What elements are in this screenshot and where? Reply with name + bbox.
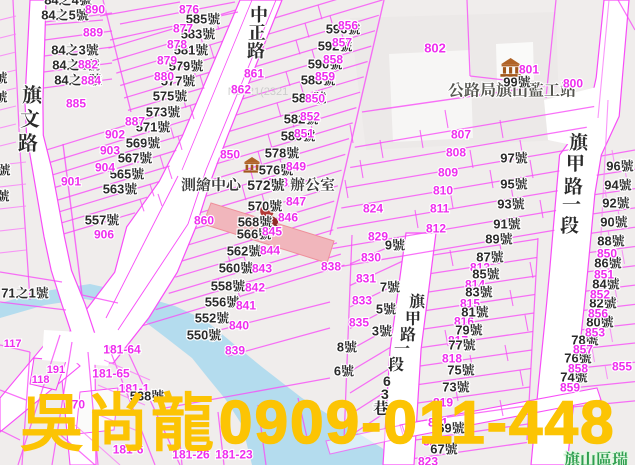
svg-text:878: 878 (167, 37, 187, 51)
svg-text:71: 71 (1, 286, 15, 301)
svg-text:99: 99 (503, 75, 517, 90)
svg-text:846: 846 (278, 210, 298, 224)
svg-text:887: 887 (125, 114, 145, 128)
svg-text:567: 567 (118, 151, 140, 166)
svg-text:889: 889 (83, 25, 103, 39)
svg-text:809: 809 (438, 165, 458, 179)
svg-text:552: 552 (195, 311, 217, 326)
svg-text:877: 877 (173, 21, 193, 35)
svg-text:563: 563 (103, 182, 125, 197)
svg-text:3: 3 (372, 324, 379, 339)
svg-text:876: 876 (179, 2, 199, 16)
svg-text:849: 849 (286, 159, 306, 173)
svg-text:558: 558 (211, 279, 233, 294)
svg-text:853: 853 (585, 325, 605, 339)
svg-text:860: 860 (194, 213, 214, 227)
svg-text:885: 885 (66, 96, 86, 110)
svg-text:118: 118 (32, 374, 50, 386)
svg-text:802: 802 (424, 41, 446, 56)
svg-text:903: 903 (100, 143, 120, 157)
svg-text:841: 841 (236, 298, 256, 312)
svg-text:6: 6 (334, 364, 341, 379)
svg-text:96: 96 (606, 159, 620, 174)
svg-text:560: 560 (219, 261, 241, 276)
svg-text:845: 845 (262, 224, 282, 238)
svg-text:566: 566 (237, 227, 259, 242)
svg-text:84: 84 (54, 73, 69, 88)
svg-text:835: 835 (349, 315, 369, 329)
svg-text:843: 843 (252, 261, 272, 275)
svg-text:838: 838 (321, 259, 341, 273)
svg-text:91: 91 (493, 217, 507, 232)
svg-text:94: 94 (604, 178, 619, 193)
svg-text:850: 850 (305, 91, 325, 105)
svg-text:906: 906 (94, 227, 114, 241)
svg-text:84: 84 (44, 0, 59, 8)
svg-text:858: 858 (568, 361, 588, 375)
svg-text:84: 84 (51, 43, 66, 58)
svg-text:855: 855 (612, 359, 632, 373)
svg-text:83: 83 (465, 285, 479, 300)
svg-text:850: 850 (220, 147, 240, 161)
svg-text:87: 87 (476, 250, 490, 265)
svg-text:562: 562 (227, 244, 249, 259)
svg-text:75: 75 (447, 363, 461, 378)
svg-text:84: 84 (41, 8, 56, 23)
svg-text:557: 557 (85, 213, 107, 228)
svg-text:856: 856 (588, 306, 608, 320)
svg-text:852: 852 (300, 109, 320, 123)
svg-text:117: 117 (4, 338, 22, 350)
svg-text:556: 556 (205, 295, 227, 310)
svg-text:833: 833 (352, 293, 372, 307)
svg-text:7: 7 (380, 280, 387, 295)
svg-text:801: 801 (519, 62, 539, 76)
svg-text:852: 852 (590, 287, 610, 301)
svg-text:5: 5 (376, 302, 383, 317)
svg-text:79: 79 (455, 323, 469, 338)
svg-text:861: 861 (244, 66, 264, 80)
svg-text:856: 856 (338, 18, 358, 32)
svg-text:851: 851 (594, 267, 614, 281)
svg-text:95: 95 (500, 177, 514, 192)
svg-text:808: 808 (446, 145, 466, 159)
svg-text:879: 879 (157, 53, 177, 67)
svg-text:850: 850 (597, 246, 617, 260)
svg-text:575: 575 (153, 89, 175, 104)
svg-text:89: 89 (485, 232, 499, 247)
svg-text:844: 844 (260, 243, 280, 257)
svg-text:90: 90 (600, 215, 614, 230)
svg-text:882: 882 (78, 57, 98, 71)
svg-text:890: 890 (85, 2, 105, 16)
svg-text:181-64: 181-64 (103, 342, 141, 356)
svg-text:578: 578 (265, 146, 287, 161)
svg-text:1: 1 (29, 286, 36, 301)
svg-text:839: 839 (225, 343, 245, 357)
svg-text:8: 8 (337, 340, 344, 355)
svg-text:904: 904 (95, 160, 115, 174)
svg-text:858: 858 (323, 52, 343, 66)
svg-text:859: 859 (315, 69, 335, 83)
svg-text:92: 92 (602, 196, 616, 211)
svg-text:84: 84 (52, 58, 67, 73)
svg-text:5: 5 (69, 8, 76, 23)
svg-text:842: 842 (245, 280, 265, 294)
svg-text:812: 812 (426, 221, 446, 235)
svg-text:0909-011-448: 0909-011-448 (219, 389, 616, 456)
svg-text:572: 572 (247, 177, 271, 193)
svg-text:吳尚龍: 吳尚龍 (20, 389, 217, 459)
svg-text:830: 830 (361, 250, 381, 264)
svg-text:77: 77 (448, 338, 462, 353)
svg-text:800: 800 (563, 76, 583, 90)
svg-text:550: 550 (187, 328, 209, 343)
svg-text:9: 9 (385, 238, 392, 253)
svg-text:840: 840 (229, 318, 249, 332)
svg-text:3: 3 (79, 43, 86, 58)
svg-text:85: 85 (472, 267, 486, 282)
svg-text:831: 831 (356, 271, 376, 285)
svg-text:93: 93 (497, 197, 511, 212)
svg-text:811: 811 (430, 201, 450, 215)
svg-text:884: 884 (81, 73, 101, 87)
svg-text:570: 570 (248, 199, 270, 214)
svg-text:81: 81 (461, 305, 475, 320)
svg-text:97: 97 (500, 151, 514, 166)
svg-text:902: 902 (105, 127, 125, 141)
svg-text:807: 807 (451, 127, 471, 141)
svg-text:181-65: 181-65 (92, 366, 130, 380)
svg-text:810: 810 (433, 183, 453, 197)
svg-text:569: 569 (126, 136, 148, 151)
svg-text:862: 862 (231, 82, 251, 96)
svg-text:824: 824 (363, 201, 383, 215)
svg-text:851: 851 (294, 126, 314, 140)
svg-text:880: 880 (154, 69, 174, 83)
svg-text:857: 857 (332, 35, 352, 49)
svg-text:847: 847 (286, 194, 306, 208)
svg-text:901: 901 (61, 174, 81, 188)
svg-text:857: 857 (573, 342, 593, 356)
svg-text:573: 573 (146, 105, 168, 120)
